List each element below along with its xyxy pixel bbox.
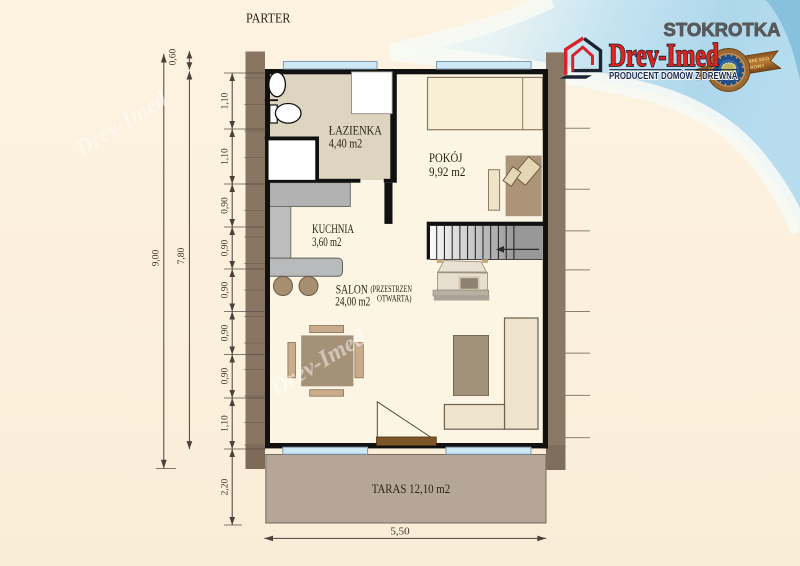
svg-text:PARTER: PARTER: [246, 12, 291, 27]
svg-text:1,10: 1,10: [221, 148, 231, 165]
svg-text:0,90: 0,90: [221, 239, 231, 256]
svg-text:0,90: 0,90: [221, 281, 231, 298]
svg-text:24,00 m2: 24,00 m2: [335, 295, 370, 309]
svg-text:POKÓJ: POKÓJ: [429, 150, 463, 165]
svg-text:9,92 m2: 9,92 m2: [429, 165, 466, 179]
svg-text:3,60 m2: 3,60 m2: [312, 235, 342, 249]
svg-text:0,90: 0,90: [221, 197, 231, 214]
svg-text:OTWARTA): OTWARTA): [377, 294, 412, 304]
svg-text:7,80: 7,80: [177, 247, 187, 264]
svg-text:Drev-Imed: Drev-Imed: [609, 38, 719, 74]
svg-text:TARAS 12,10 m2: TARAS 12,10 m2: [372, 481, 451, 496]
svg-text:0,60: 0,60: [169, 48, 179, 65]
svg-text:ŁAZIENKA: ŁAZIENKA: [329, 124, 382, 138]
svg-text:1,10: 1,10: [221, 92, 231, 109]
svg-text:1,10: 1,10: [221, 415, 231, 432]
svg-text:PRODUCENT DOMÓW Z DREWNA: PRODUCENT DOMÓW Z DREWNA: [609, 69, 738, 82]
svg-text:KUCHNIA: KUCHNIA: [312, 222, 354, 236]
svg-text:0,90: 0,90: [221, 324, 231, 341]
svg-text:(PRZESTRZEN: (PRZESTRZEN: [371, 284, 413, 294]
svg-text:9,00: 9,00: [152, 249, 162, 266]
svg-text:0,90: 0,90: [221, 367, 231, 384]
svg-text:5,50: 5,50: [390, 526, 410, 538]
svg-text:2,20: 2,20: [221, 478, 231, 495]
svg-text:4,40 m2: 4,40 m2: [329, 137, 363, 151]
svg-text:STOKROTKA: STOKROTKA: [664, 19, 781, 40]
